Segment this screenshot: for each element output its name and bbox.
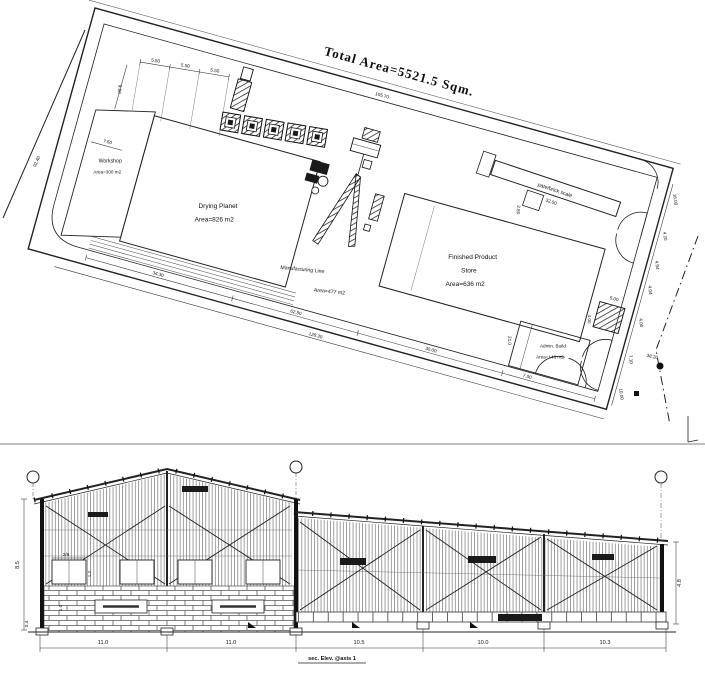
- base-label-smudge: [498, 614, 542, 621]
- bay-dim-4: 10.0: [478, 640, 489, 646]
- drying-plant-label: Drying Planet: [198, 203, 237, 210]
- boundary-monument: [634, 391, 639, 396]
- bay-dim-1: 11.0: [98, 640, 108, 646]
- store-label-1: Finished Product: [448, 254, 497, 261]
- admin-area-label: Area=146 m2: [536, 354, 564, 359]
- low-right-column: [660, 544, 664, 614]
- admin-dim-210: 21.0: [507, 336, 512, 345]
- window: [246, 560, 280, 584]
- window: [178, 560, 212, 584]
- brick-dim-10: 1.0: [58, 604, 63, 611]
- height-dim-04: 0.4: [24, 620, 29, 627]
- dim-420: 4.20: [662, 231, 668, 241]
- admin-label: Admin. Build: [540, 344, 566, 349]
- bay-dim-2: 11.0: [226, 640, 236, 646]
- bay-dim-3: 10.5: [354, 640, 365, 646]
- window-dim-26: 2/6: [63, 552, 70, 557]
- workshop-area-label: Area=300 m2: [93, 169, 121, 174]
- low-base-strip: [296, 612, 666, 622]
- spot-elevation-marker: [657, 363, 664, 370]
- dim-494: 4.94: [654, 260, 660, 270]
- drawing-sheet: 92.40 Total Area=5521.5 Sqm. 105.70 Work…: [0, 0, 705, 685]
- dim-900: 9.00: [117, 85, 123, 95]
- store-label-2: Store: [461, 268, 477, 275]
- dim-404: 4.04: [647, 285, 653, 295]
- height-dim-85: 8.5: [15, 561, 21, 569]
- drying-plant-area-label: Area=826 m2: [195, 217, 235, 224]
- elevation-caption: sec. Elev. @axis 1: [308, 656, 356, 662]
- height-dim-48: 4.8: [677, 579, 683, 587]
- guard-dim-400: 4.00: [587, 315, 592, 324]
- window: [52, 560, 86, 584]
- dim-710: 7.10: [628, 355, 634, 365]
- cad-drawing: 92.40 Total Area=5521.5 Sqm. 105.70 Work…: [0, 0, 705, 685]
- bay-dim-5: 10.3: [600, 640, 611, 646]
- dim-400b: 4.00: [638, 318, 644, 328]
- window: [120, 560, 154, 584]
- window-dim-12: 1.2: [87, 570, 92, 577]
- tall-left-column: [40, 499, 44, 632]
- workshop-label: Workshop: [99, 159, 122, 165]
- scale-dim-280: 2.80: [516, 205, 522, 215]
- store-area-label: Area=636 m2: [446, 281, 486, 288]
